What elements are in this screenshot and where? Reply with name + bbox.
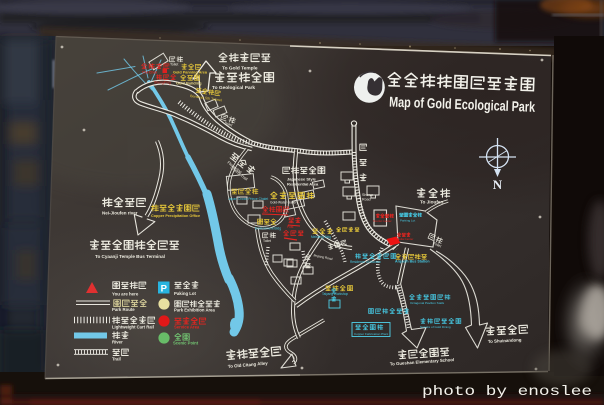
svg-text:ShengPing: ShengPing (154, 81, 171, 85)
svg-text:Tourist Center: Tourist Center (373, 219, 392, 223)
svg-text:Copper Fabrication Plant: Copper Fabrication Plant (354, 332, 388, 336)
svg-text:River: River (112, 340, 123, 345)
svg-text:To Geological Park: To Geological Park (212, 85, 255, 91)
svg-text:Trail: Trail (112, 357, 121, 362)
svg-text:To Jioufen: To Jioufen (420, 200, 443, 205)
svg-text:photo by enoslee: photo by enoslee (422, 385, 592, 400)
svg-text:Toilet: Toilet (263, 239, 271, 243)
svg-text:Environment Bldg: Environment Bldg (255, 227, 281, 231)
svg-text:Shewo: Shewo (362, 193, 373, 197)
svg-text:Parking Lot: Parking Lot (400, 219, 415, 223)
svg-text:Snacks of Gold Dining: Snacks of Gold Dining (420, 325, 451, 329)
svg-text:Octagonal Pavilion Stalls: Octagonal Pavilion Stalls (410, 301, 445, 305)
svg-text:Lightweight Cart Rail: Lightweight Cart Rail (112, 325, 154, 330)
svg-text:Taiyang Workshop: Taiyang Workshop (322, 292, 348, 296)
svg-text:Residential Area: Residential Area (287, 182, 319, 187)
svg-text:Media Center: Media Center (396, 237, 413, 241)
svg-text:Service Area: Service Area (174, 325, 200, 330)
svg-text:P: P (161, 283, 168, 294)
svg-text:Park Route: Park Route (112, 307, 135, 312)
svg-text:N: N (493, 177, 503, 192)
svg-text:To Gold Temple: To Gold Temple (222, 66, 258, 72)
svg-text:Japan Crown Prince Chalet: Japan Crown Prince Chalet (228, 197, 268, 201)
svg-text:Gold-Water Gallery: Gold-Water Gallery (270, 201, 298, 205)
svg-text:Nei-Jioufen river: Nei-Jioufen river (102, 211, 138, 216)
svg-text:You are here: You are here (112, 292, 139, 297)
svg-text:Gold Panning Area: Gold Panning Area (173, 71, 208, 75)
svg-text:Copper Precipitation Office: Copper Precipitation Office (151, 214, 200, 218)
svg-text:Gold Building: Gold Building (176, 81, 202, 86)
svg-text:Chi Choi: Chi Choi (142, 71, 157, 75)
svg-text:Meishing Bldg: Meishing Bldg (311, 235, 331, 239)
svg-text:Scenic Point: Scenic Point (173, 341, 199, 346)
svg-text:Park Exhibition Area: Park Exhibition Area (174, 308, 215, 313)
svg-text:Toilet: Toilet (170, 63, 178, 67)
svg-text:Post: Post (287, 225, 293, 229)
svg-text:To Cyaanji Temple Bus Terminal: To Cyaanji Temple Bus Terminal (95, 254, 165, 259)
svg-text:Residence of Maosan: Residence of Maosan (350, 260, 381, 264)
svg-text:Paking Lot: Paking Lot (174, 291, 197, 296)
svg-text:Arqueih Bus Station: Arqueih Bus Station (395, 260, 430, 264)
svg-text:Road: Road (362, 198, 371, 202)
